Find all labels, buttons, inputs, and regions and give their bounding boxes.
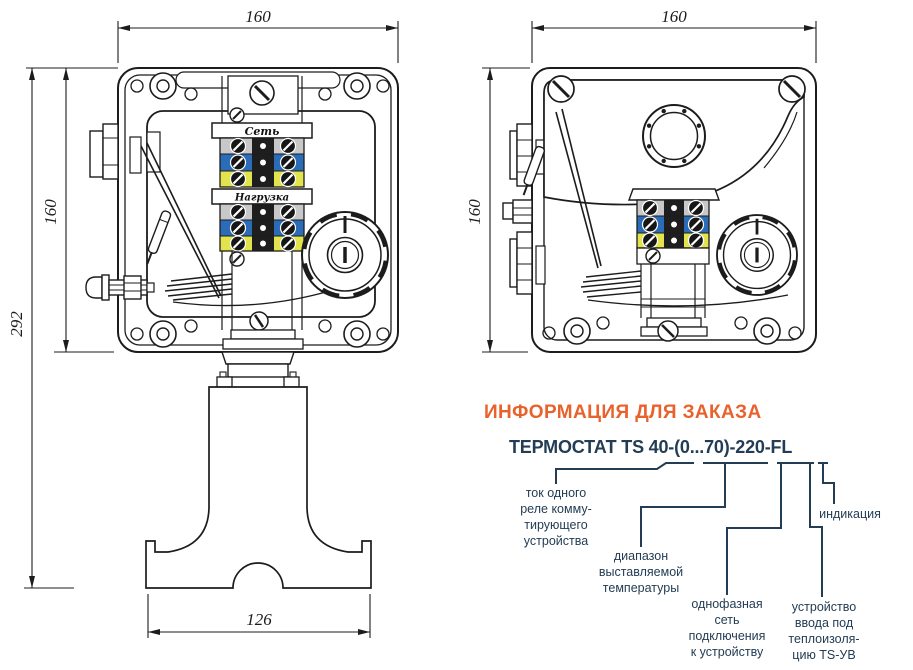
- technical-drawing-canvas: 160 160 292 126: [0, 0, 913, 670]
- order-code: ТЕРМОСТАТ TS 40-(0...70)-220-FL: [509, 437, 792, 458]
- callout-mains-connection: однофазная сеть подключения к устройству: [671, 596, 783, 660]
- cover-screw-icon: [548, 76, 574, 102]
- dim-label-right-top-width: 160: [661, 7, 687, 26]
- thermostat-datasheet: 160 160 292 126: [0, 0, 913, 670]
- right-drawing-cover-view: [503, 68, 816, 352]
- callout-temperature-range: диапазон выставляемой температуры: [585, 548, 697, 596]
- corner-screw-icon: [150, 73, 176, 99]
- dim-label-left-base-width: 126: [246, 610, 272, 629]
- left-drawing-front-view: Сеть Нагрузка: [86, 68, 398, 588]
- terminal-label-load: Нагрузка: [234, 193, 289, 204]
- dim-label-left-top-width: 160: [245, 7, 271, 26]
- callout-indication: индикация: [794, 506, 906, 522]
- cover-hole: [643, 105, 705, 167]
- mounting-base: [146, 352, 371, 588]
- dim-label-left-total-height: 292: [7, 311, 26, 337]
- terminal-label-mains: Сеть: [245, 125, 280, 138]
- dim-label-left-box-height: 160: [41, 199, 60, 225]
- dim-label-right-box-height: 160: [465, 199, 484, 225]
- callout-relay-current: ток одного реле комму- тирующего устройс…: [500, 485, 612, 549]
- callout-entry-device: устройство ввода под теплоизоля- цию TS-…: [768, 599, 880, 663]
- order-info-heading: ИНФОРМАЦИЯ ДЛЯ ЗАКАЗА: [484, 402, 762, 424]
